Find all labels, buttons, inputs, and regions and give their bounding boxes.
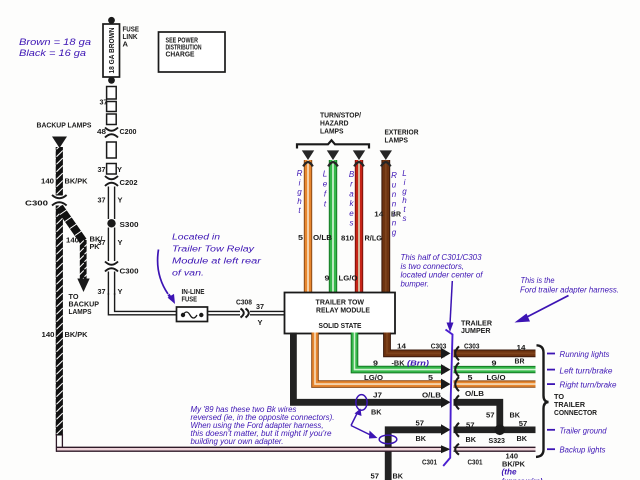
svg-text:TO: TO bbox=[69, 294, 80, 301]
svg-text:Right turn/brake: Right turn/brake bbox=[560, 380, 618, 389]
svg-text:37: 37 bbox=[256, 304, 264, 311]
svg-text:R: R bbox=[297, 169, 303, 178]
svg-text:9: 9 bbox=[325, 276, 330, 283]
svg-text:C202: C202 bbox=[120, 180, 138, 187]
svg-text:57: 57 bbox=[371, 474, 380, 480]
svg-text:Located in: Located in bbox=[172, 232, 220, 242]
svg-text:LAMPS: LAMPS bbox=[320, 127, 344, 136]
svg-text:BK/PK: BK/PK bbox=[65, 179, 88, 186]
svg-text:Left turn/brake: Left turn/brake bbox=[560, 366, 614, 375]
svg-text:This is the: This is the bbox=[521, 276, 555, 285]
svg-text:BK/PK: BK/PK bbox=[65, 332, 88, 339]
svg-text:C308: C308 bbox=[236, 300, 252, 307]
svg-text:PK: PK bbox=[90, 244, 100, 251]
svg-text:C301: C301 bbox=[468, 460, 483, 467]
svg-text:LG/O: LG/O bbox=[364, 375, 384, 382]
svg-text:h: h bbox=[297, 197, 302, 206]
svg-text:CONNECTOR: CONNECTOR bbox=[554, 408, 598, 417]
svg-text:O/LB: O/LB bbox=[313, 235, 332, 242]
svg-text:of van.: of van. bbox=[172, 268, 204, 278]
svg-text:i: i bbox=[404, 178, 406, 187]
svg-text:5: 5 bbox=[298, 235, 303, 242]
svg-text:Brown = 18 ga: Brown = 18 ga bbox=[19, 37, 91, 48]
svg-text:Y: Y bbox=[118, 240, 123, 247]
svg-text:Black = 16 ga: Black = 16 ga bbox=[19, 48, 86, 59]
svg-text:i: i bbox=[299, 178, 301, 187]
svg-text:Y: Y bbox=[117, 167, 122, 174]
svg-text:BK/: BK/ bbox=[90, 237, 103, 244]
svg-text:57: 57 bbox=[486, 412, 495, 419]
svg-text:Y: Y bbox=[118, 198, 123, 205]
svg-text:C300: C300 bbox=[25, 201, 48, 208]
svg-text:14: 14 bbox=[517, 345, 526, 352]
svg-text:14: 14 bbox=[397, 343, 406, 350]
svg-text:LAMPS: LAMPS bbox=[69, 309, 92, 316]
svg-text:s: s bbox=[403, 214, 407, 223]
svg-text:SOLID STATE: SOLID STATE bbox=[319, 321, 362, 330]
svg-text:Trailer Tow Relay: Trailer Tow Relay bbox=[172, 244, 255, 254]
svg-text:bumper.: bumper. bbox=[401, 279, 430, 288]
svg-text:BK: BK bbox=[517, 436, 528, 443]
svg-text:s: s bbox=[350, 219, 354, 228]
svg-text:t: t bbox=[403, 205, 406, 214]
svg-text:f: f bbox=[324, 190, 327, 199]
svg-text:IN-LINE: IN-LINE bbox=[182, 289, 205, 296]
svg-text:C200: C200 bbox=[120, 129, 137, 136]
svg-text:BK: BK bbox=[393, 474, 404, 480]
svg-text:C301: C301 bbox=[422, 460, 437, 467]
svg-text:r: r bbox=[350, 180, 353, 189]
svg-text:is two connectors,: is two connectors, bbox=[401, 262, 465, 271]
svg-text:LG/O: LG/O bbox=[339, 276, 359, 283]
svg-text:-BK: -BK bbox=[392, 360, 405, 367]
svg-text:L: L bbox=[402, 169, 406, 178]
svg-text:BK: BK bbox=[466, 437, 477, 444]
svg-text:J7: J7 bbox=[373, 392, 382, 399]
svg-text:LINK: LINK bbox=[123, 34, 138, 41]
svg-text:RELAY MODULE: RELAY MODULE bbox=[316, 305, 370, 314]
svg-text:FUSE: FUSE bbox=[182, 297, 198, 304]
svg-text:48: 48 bbox=[97, 129, 106, 136]
svg-text:Y: Y bbox=[118, 289, 123, 296]
svg-text:Running lights: Running lights bbox=[560, 350, 610, 359]
svg-text:(Brn): (Brn) bbox=[407, 358, 430, 367]
svg-text:n: n bbox=[392, 219, 397, 228]
svg-text:n: n bbox=[392, 200, 397, 209]
svg-text:810: 810 bbox=[341, 236, 354, 243]
svg-text:S323: S323 bbox=[489, 438, 506, 445]
svg-text:S300: S300 bbox=[120, 222, 139, 229]
svg-text:O/LB: O/LB bbox=[422, 392, 441, 399]
svg-text:37: 37 bbox=[100, 100, 108, 107]
svg-text:BK: BK bbox=[371, 409, 382, 416]
svg-text:5: 5 bbox=[428, 375, 433, 382]
svg-text:LG/O: LG/O bbox=[487, 375, 507, 382]
svg-text:e: e bbox=[349, 209, 354, 218]
svg-text:140: 140 bbox=[66, 238, 79, 245]
svg-text:n: n bbox=[392, 190, 397, 199]
svg-text:FUSE: FUSE bbox=[123, 27, 140, 34]
svg-text:C303: C303 bbox=[464, 343, 480, 350]
svg-text:L: L bbox=[323, 170, 327, 179]
svg-text:140: 140 bbox=[42, 332, 55, 339]
svg-text:k: k bbox=[350, 199, 355, 208]
svg-text:Backup lights: Backup lights bbox=[560, 445, 606, 454]
svg-text:BK: BK bbox=[416, 436, 427, 443]
svg-text:R/LG: R/LG bbox=[365, 236, 383, 243]
svg-text:LAMPS: LAMPS bbox=[385, 135, 409, 144]
svg-text:5: 5 bbox=[468, 375, 473, 382]
svg-text:14: 14 bbox=[374, 212, 383, 219]
svg-text:140: 140 bbox=[506, 453, 519, 460]
svg-text:Trailer ground: Trailer ground bbox=[560, 427, 608, 436]
svg-text:37: 37 bbox=[98, 167, 106, 174]
svg-text:BK: BK bbox=[510, 412, 521, 419]
svg-text:t: t bbox=[324, 200, 327, 209]
svg-text:140: 140 bbox=[41, 179, 54, 186]
svg-text:C300: C300 bbox=[120, 269, 139, 276]
svg-text:57: 57 bbox=[466, 422, 475, 429]
svg-text:BACKUP LAMPS: BACKUP LAMPS bbox=[37, 123, 92, 130]
svg-text:37: 37 bbox=[98, 289, 106, 296]
svg-text:u: u bbox=[392, 181, 397, 190]
svg-text:Y: Y bbox=[258, 320, 263, 327]
svg-text:h: h bbox=[402, 196, 407, 205]
svg-text:37: 37 bbox=[98, 198, 106, 205]
svg-text:BACKUP: BACKUP bbox=[69, 302, 100, 309]
svg-text:O/LB: O/LB bbox=[465, 391, 484, 398]
svg-text:18 GA BROWN: 18 GA BROWN bbox=[109, 28, 116, 74]
svg-text:This half of C301/C303: This half of C301/C303 bbox=[401, 253, 482, 262]
svg-text:R: R bbox=[391, 171, 397, 180]
svg-text:Module at left rear: Module at left rear bbox=[172, 256, 263, 266]
svg-text:A: A bbox=[123, 42, 129, 49]
svg-text:9: 9 bbox=[373, 360, 378, 367]
svg-text:t: t bbox=[298, 206, 301, 215]
svg-text:57: 57 bbox=[519, 421, 528, 428]
svg-text:CHARGE: CHARGE bbox=[166, 50, 195, 59]
svg-text:9: 9 bbox=[492, 360, 497, 367]
svg-text:Ford trailer adapter harness.: Ford trailer adapter harness. bbox=[520, 286, 619, 295]
svg-text:57: 57 bbox=[416, 420, 425, 427]
svg-text:BR: BR bbox=[515, 359, 525, 366]
svg-text:g: g bbox=[402, 187, 407, 196]
svg-text:JUMPER: JUMPER bbox=[461, 326, 491, 335]
svg-text:B: B bbox=[349, 170, 355, 179]
svg-text:(the: (the bbox=[502, 468, 518, 477]
svg-text:g: g bbox=[392, 228, 397, 237]
svg-text:g: g bbox=[297, 188, 302, 197]
svg-text:building your own adapter.: building your own adapter. bbox=[191, 437, 284, 446]
svg-text:BR: BR bbox=[391, 212, 401, 219]
svg-text:C303: C303 bbox=[431, 343, 447, 350]
svg-text:a: a bbox=[349, 189, 354, 198]
svg-text:located under center of: located under center of bbox=[401, 271, 484, 280]
svg-text:e: e bbox=[323, 180, 328, 189]
